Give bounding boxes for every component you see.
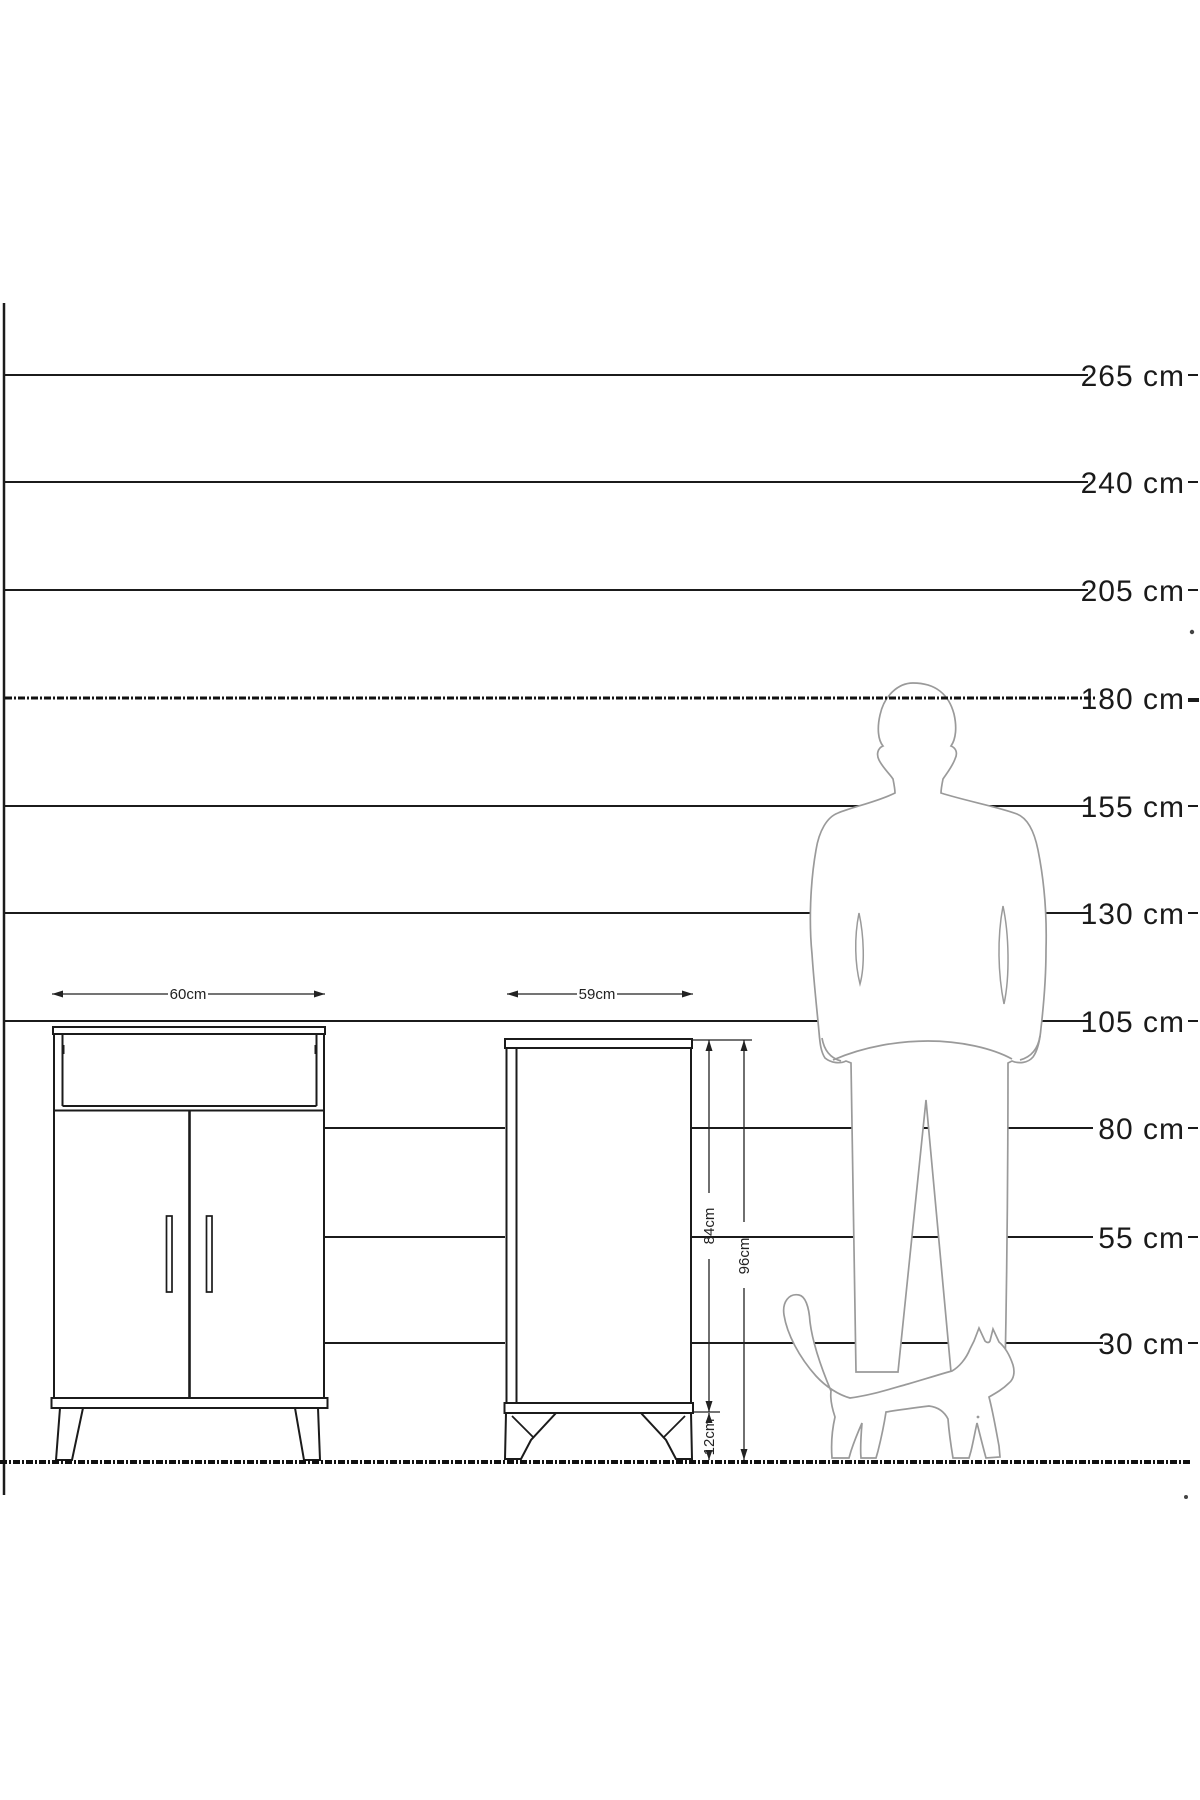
- cabinet2-body-mask: [505, 1039, 692, 1413]
- cabinet2-body-height-label: 84cm: [701, 1208, 718, 1245]
- cabinet1-bottom-board: [52, 1398, 328, 1408]
- scale-label-80: 80 cm: [1098, 1113, 1185, 1146]
- cabinet2-leg-height-label: 12cm: [701, 1419, 718, 1456]
- scale-label-205: 205 cm: [1081, 575, 1185, 608]
- artifact-dot-upper: [1190, 630, 1194, 634]
- cat-fur-dot: [977, 1416, 980, 1419]
- diagram-svg: 60cm 59cm 84cm 96cm 12cm 265 cm 240 cm 2…: [0, 0, 1200, 1800]
- scale-label-105: 105 cm: [1081, 1006, 1185, 1039]
- scale-label-240: 240 cm: [1081, 467, 1185, 500]
- cabinet1-left-door-handle: [167, 1216, 173, 1292]
- scale-label-30: 30 cm: [1098, 1328, 1185, 1361]
- cabinet2-bottom-board: [505, 1403, 694, 1413]
- cabinet1-width-label: 60cm: [170, 986, 207, 1003]
- cabinet-2: [505, 1039, 694, 1459]
- cabinet1-right-door-handle: [207, 1216, 213, 1292]
- cabinet2-top-board: [505, 1039, 692, 1048]
- scale-label-155: 155 cm: [1081, 791, 1185, 824]
- scale-label-55: 55 cm: [1098, 1222, 1185, 1255]
- cabinet-1: [52, 1027, 328, 1460]
- cabinet2-width-label: 59cm: [579, 986, 616, 1003]
- scale-label-130: 130 cm: [1081, 898, 1185, 931]
- cabinet2-total-height-label: 96cm: [736, 1238, 753, 1275]
- artifact-dot-lower: [1184, 1495, 1188, 1499]
- cabinet1-top-board: [53, 1027, 325, 1034]
- furniture-height-diagram: 60cm 59cm 84cm 96cm 12cm 265 cm 240 cm 2…: [0, 0, 1200, 1800]
- scale-label-180: 180 cm: [1081, 683, 1185, 716]
- scale-label-265: 265 cm: [1081, 360, 1185, 393]
